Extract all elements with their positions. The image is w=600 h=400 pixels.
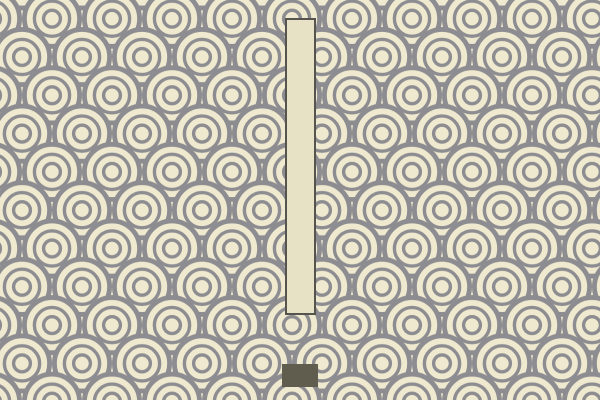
player-block bbox=[282, 364, 318, 387]
game-stage[interactable] bbox=[0, 0, 600, 400]
vertical-obstacle-bar bbox=[285, 18, 316, 315]
